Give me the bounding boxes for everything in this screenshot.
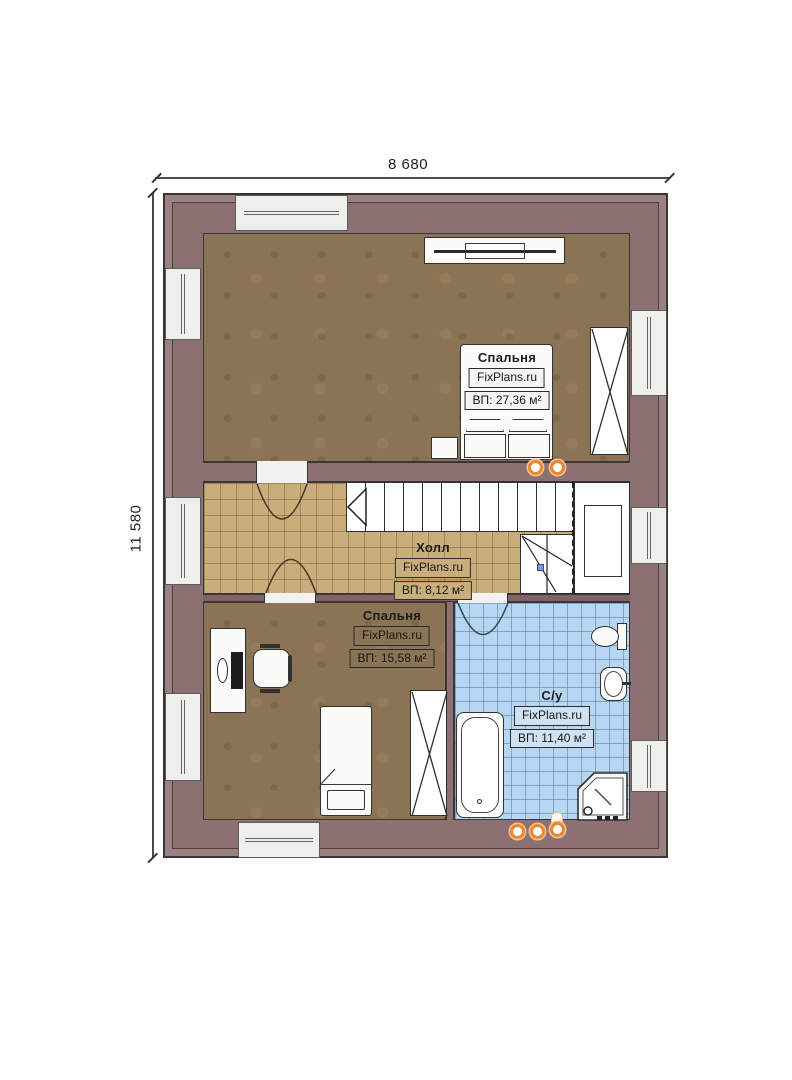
single-bed-blanket-line: [321, 784, 371, 785]
office-chair: [253, 649, 290, 688]
room-area-label: ВП: 27,36 м²: [465, 391, 550, 411]
brand-label: FixPlans.ru: [469, 368, 545, 388]
window: [165, 268, 201, 340]
bathtub-drain-icon: [477, 799, 482, 804]
nightstand: [431, 437, 458, 459]
single-bed-pillow: [327, 790, 365, 810]
wardrobe: [410, 690, 447, 816]
dimension-height-label: 11 580: [127, 505, 144, 553]
window: [165, 693, 201, 781]
wardrobe: [590, 327, 628, 455]
toilet-bowl: [591, 626, 619, 647]
staircase-node: [537, 564, 544, 571]
room-area-label: ВП: 8,12 м²: [394, 581, 472, 601]
window: [631, 740, 667, 792]
chair-armrest: [260, 644, 280, 648]
staircase-flight: [346, 482, 574, 532]
staircase-cut-line: [572, 482, 574, 594]
brand-label: FixPlans.ru: [354, 626, 430, 646]
room-name: С/у: [541, 688, 562, 703]
room-label-bedroom-top: Спальня FixPlans.ru ВП: 27,36 м²: [465, 350, 550, 410]
room-name: Спальня: [363, 608, 421, 623]
bed-mattress: [464, 434, 506, 458]
staircase-winder: [520, 534, 574, 594]
sink-tap-icon: [622, 682, 631, 685]
window: [235, 195, 348, 231]
room-label-bedroom-bottom: Спальня FixPlans.ru ВП: 15,58 м²: [350, 608, 435, 668]
chair-backrest: [288, 655, 292, 682]
dimension-width-label: 8 680: [388, 156, 428, 173]
window: [238, 822, 320, 858]
window: [631, 507, 667, 564]
brand-label: FixPlans.ru: [514, 706, 590, 726]
wardrobe-x-icon: [591, 328, 629, 456]
room-area-label: ВП: 11,40 м²: [510, 729, 594, 749]
ceiling-light: [550, 460, 565, 475]
ceiling-light: [550, 822, 565, 837]
keyboard-icon: [217, 658, 228, 683]
room-name: Холл: [416, 540, 450, 555]
sink-basin: [604, 671, 623, 697]
door-opening: [264, 593, 316, 603]
wardrobe-x-icon: [411, 691, 448, 817]
tv-outline: [465, 243, 525, 259]
door-opening: [256, 461, 308, 483]
window: [631, 310, 667, 396]
dimension-height-line: [152, 193, 154, 858]
shower-cabin: [577, 772, 629, 822]
chair-armrest: [260, 689, 280, 693]
room-label-hall: Холл FixPlans.ru ВП: 8,12 м²: [394, 540, 472, 600]
ceiling-light: [530, 824, 545, 839]
staircase-opening-outline: [584, 505, 622, 577]
ceiling-light: [528, 460, 543, 475]
bed-mattress: [508, 434, 550, 458]
room-area-label: ВП: 15,58 м²: [350, 649, 435, 669]
ceiling-light: [510, 824, 525, 839]
room-label-bathroom: С/у FixPlans.ru ВП: 11,40 м²: [510, 688, 594, 748]
dimension-width-line: [155, 177, 670, 179]
bed-pillow: [509, 419, 547, 432]
monitor-icon: [231, 652, 243, 689]
room-bedroom-top-floor: [203, 233, 630, 462]
floor-plan-sheet: 8 680 11 580: [0, 0, 792, 1080]
window: [165, 497, 201, 585]
bed-pillow: [466, 419, 504, 432]
brand-label: FixPlans.ru: [395, 558, 471, 578]
room-name: Спальня: [478, 350, 536, 365]
